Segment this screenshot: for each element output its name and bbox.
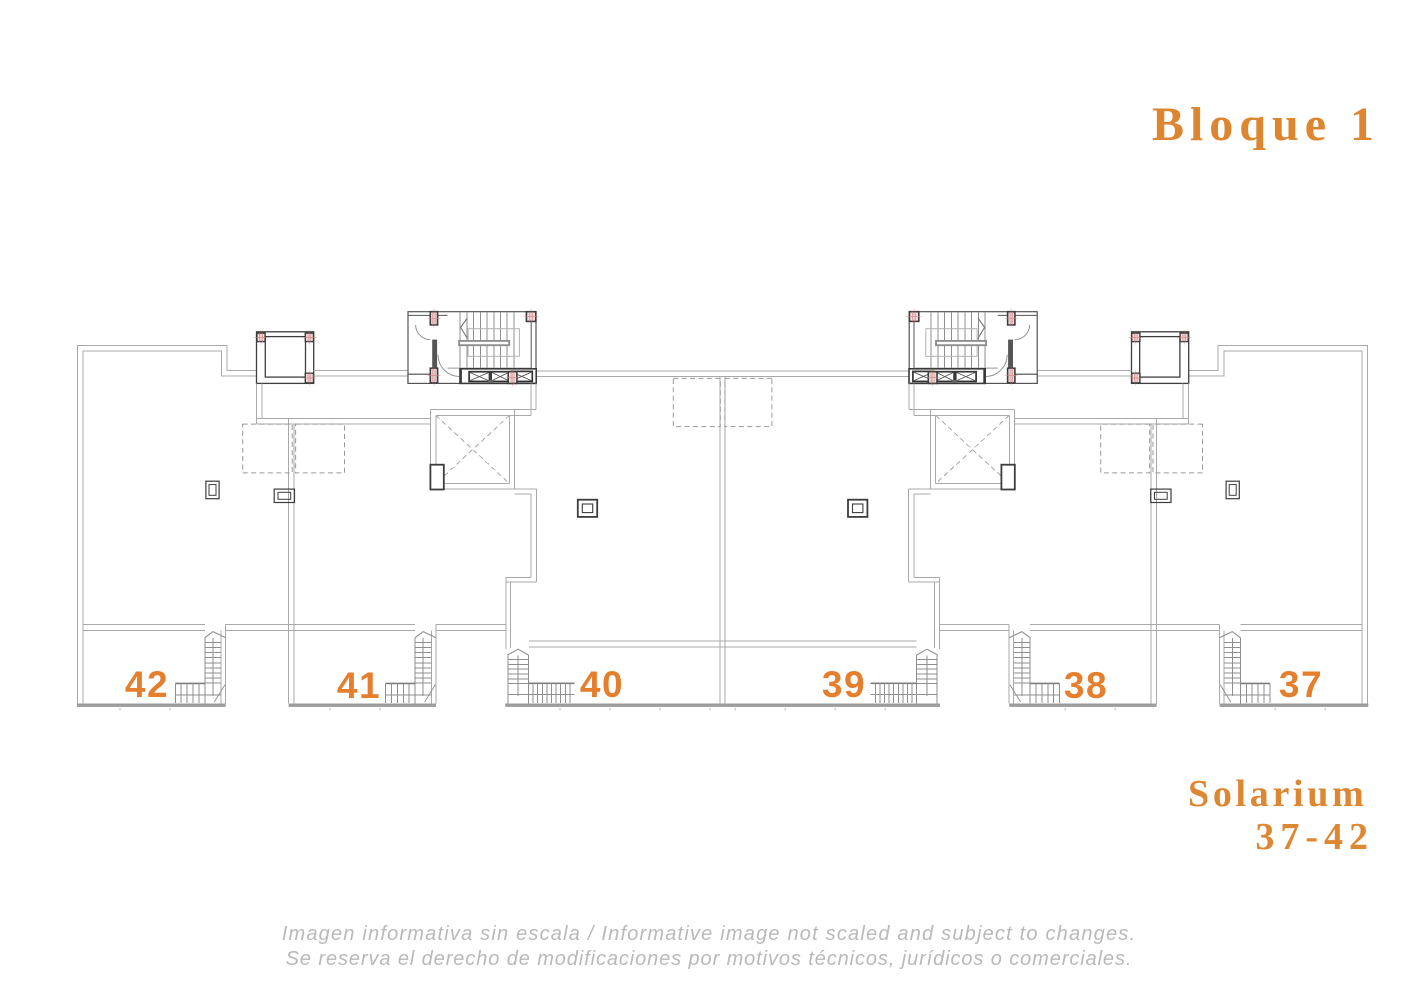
svg-text:Se reserva el derecho de modif: Se reserva el derecho de modificaciones … <box>286 948 1133 970</box>
svg-text:39: 39 <box>822 664 866 705</box>
svg-text:Imagen informativa sin escala: Imagen informativa sin escala / Informat… <box>282 923 1137 945</box>
svg-text:37: 37 <box>1279 664 1323 705</box>
svg-text:38: 38 <box>1064 665 1108 706</box>
svg-text:41: 41 <box>337 665 381 706</box>
svg-text:40: 40 <box>580 664 624 705</box>
svg-text:37-42: 37-42 <box>1255 816 1374 858</box>
svg-text:42: 42 <box>125 664 169 705</box>
svg-text:Bloque 1: Bloque 1 <box>1152 98 1380 151</box>
svg-text:Solarium: Solarium <box>1188 773 1368 815</box>
